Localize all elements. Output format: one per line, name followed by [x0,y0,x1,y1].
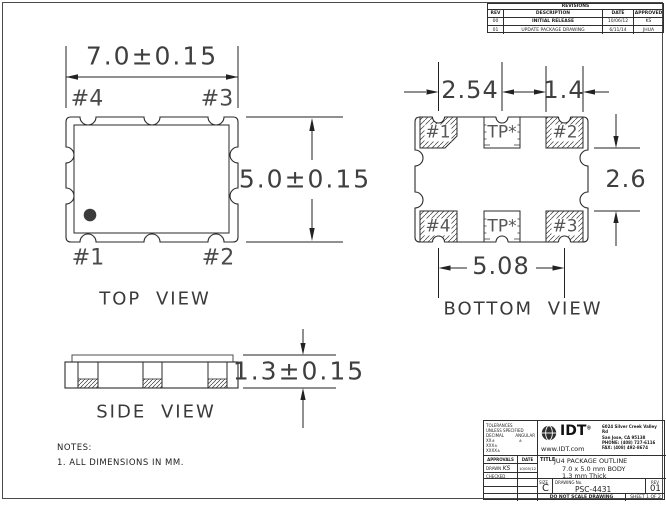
drawing-number-cell: DRAWING No. PSC-4431 [553,479,646,494]
revisions-col-rev: REV [488,10,504,18]
drawn-label: DRAWN [486,466,501,471]
top-view-pin1-label: #1 [72,246,104,271]
approvals-empty-row [484,494,518,501]
bottom-view-pad2-label: #2 [551,125,578,142]
notes-item-1: 1. ALL DIMENSIONS IN MM. [57,458,184,468]
bottom-view-pad-width-dimension: 1.4 [543,76,584,104]
revisions-col-description: DESCRIPTION [504,10,603,18]
bottom-view-pad1-label: #1 [424,125,451,142]
revision-row-approved: JHUA [634,26,663,34]
revision-row-description: UPDATE PACKAGE DRAWING [504,26,603,34]
top-view-pin3-label: #3 [201,87,233,112]
top-view-outline [66,117,238,242]
sheet-number: SHEET 1 OF 2 [626,494,665,501]
side-view-outline [65,355,238,388]
title-block: TOLERANCES UNLESS SPECIFIED DECIMAL ANGU… [483,420,665,500]
size-cell: SIZE C [538,479,553,494]
approvals-empty-row [518,494,538,501]
address-line-1: 6024 Silver Creek Valley Rd [602,424,664,435]
rev-cell: REV 01 [646,479,665,494]
drawing-title-line3: 1.3 mm Thick [562,472,606,479]
bottom-view-pad4-label: #4 [424,219,451,236]
revision-row-rev: 00 [488,18,504,26]
approvals-header: APPROVALS [484,456,518,464]
registered-mark: ® [586,425,591,431]
revisions-col-date: DATE [603,10,634,18]
idt-logo-text: IDT® [560,423,591,439]
company-website: www.IDT.com [541,445,585,453]
revision-row-description: INITIAL RELEASE [504,18,603,26]
tolerance-xxxx: XXXX± [486,448,535,453]
revision-row-date: 6/11/14 [603,26,634,34]
drawn-date: 10/05/12 [518,464,538,473]
title-cell: TITLE JU4 PACKAGE OUTLINE 7.0 x 5.0 mm B… [538,456,666,479]
address-line-4: FAX: (408) 492-8674 [602,445,664,450]
company-cell: IDT® www.IDT.com 6024 Silver Creek Valle… [538,421,666,456]
top-view-width-dimension: 7.0±0.15 [86,42,218,71]
top-view-pin2-label: #2 [202,246,234,271]
bottom-view-pitch-dimension: 2.54 [441,76,498,104]
do-not-scale-note: DO NOT SCALE DRAWING [538,494,626,501]
bottom-view-title: BOTTOM VIEW [443,299,602,320]
approvals-empty-row [518,487,538,494]
drawing-sheet: 7.0±0.15 5.0±0.15 #4 #3 #1 #2 TOP VIEW 2… [0,0,666,505]
size-value: C [542,483,549,494]
top-view-dimension-lines [66,46,343,242]
bottom-view-span-dimension: 5.08 [472,252,529,280]
checked-label: CHECKED [486,474,505,479]
approvals-date-header: DATE [518,456,538,464]
notes-heading: NOTES: [57,443,92,453]
tolerance-xx: XX± [486,438,495,443]
bottom-view-tp-bottom-label: TP* [486,219,517,236]
revisions-col-approved: APPROVED [634,10,663,18]
top-view-title: TOP VIEW [99,289,211,310]
revision-row-approved: KS [634,18,663,26]
approvals-empty-row [484,479,518,487]
company-name: IDT [560,423,586,439]
bottom-view-row-gap-dimension: 2.6 [605,165,646,193]
side-view-thickness-dimension: 1.3±0.15 [233,357,365,386]
tolerance-angular: ± [519,438,522,443]
pin-1-indicator [84,209,97,222]
approvals-empty-row [484,487,518,494]
drawing-number-value: PSC-4431 [575,485,611,494]
revisions-table: REVISIONS REV DESCRIPTION DATE APPROVED … [487,3,664,33]
revision-row-rev: 01 [488,26,504,34]
top-view-height-dimension: 5.0±0.15 [239,165,371,194]
title-label: TITLE [540,457,555,463]
top-view-pin4-label: #4 [71,87,103,112]
revision-row-date: 10/06/12 [603,18,634,26]
drawn-cell: DRAWN KS [484,464,518,473]
bottom-view-pad3-label: #3 [551,219,578,236]
drawn-signature: KS [503,465,511,472]
rev-value: 01 [650,484,661,494]
tolerances-cell: TOLERANCES UNLESS SPECIFIED DECIMAL ANGU… [484,421,538,456]
approvals-empty-row [518,479,538,487]
side-view-title: SIDE VIEW [96,402,215,423]
side-view-lid [72,355,233,362]
bottom-view-tp-top-label: TP* [486,125,517,142]
company-address: 6024 Silver Creek Valley Rd San Jose, CA… [602,424,664,450]
idt-globe-icon [541,425,557,441]
